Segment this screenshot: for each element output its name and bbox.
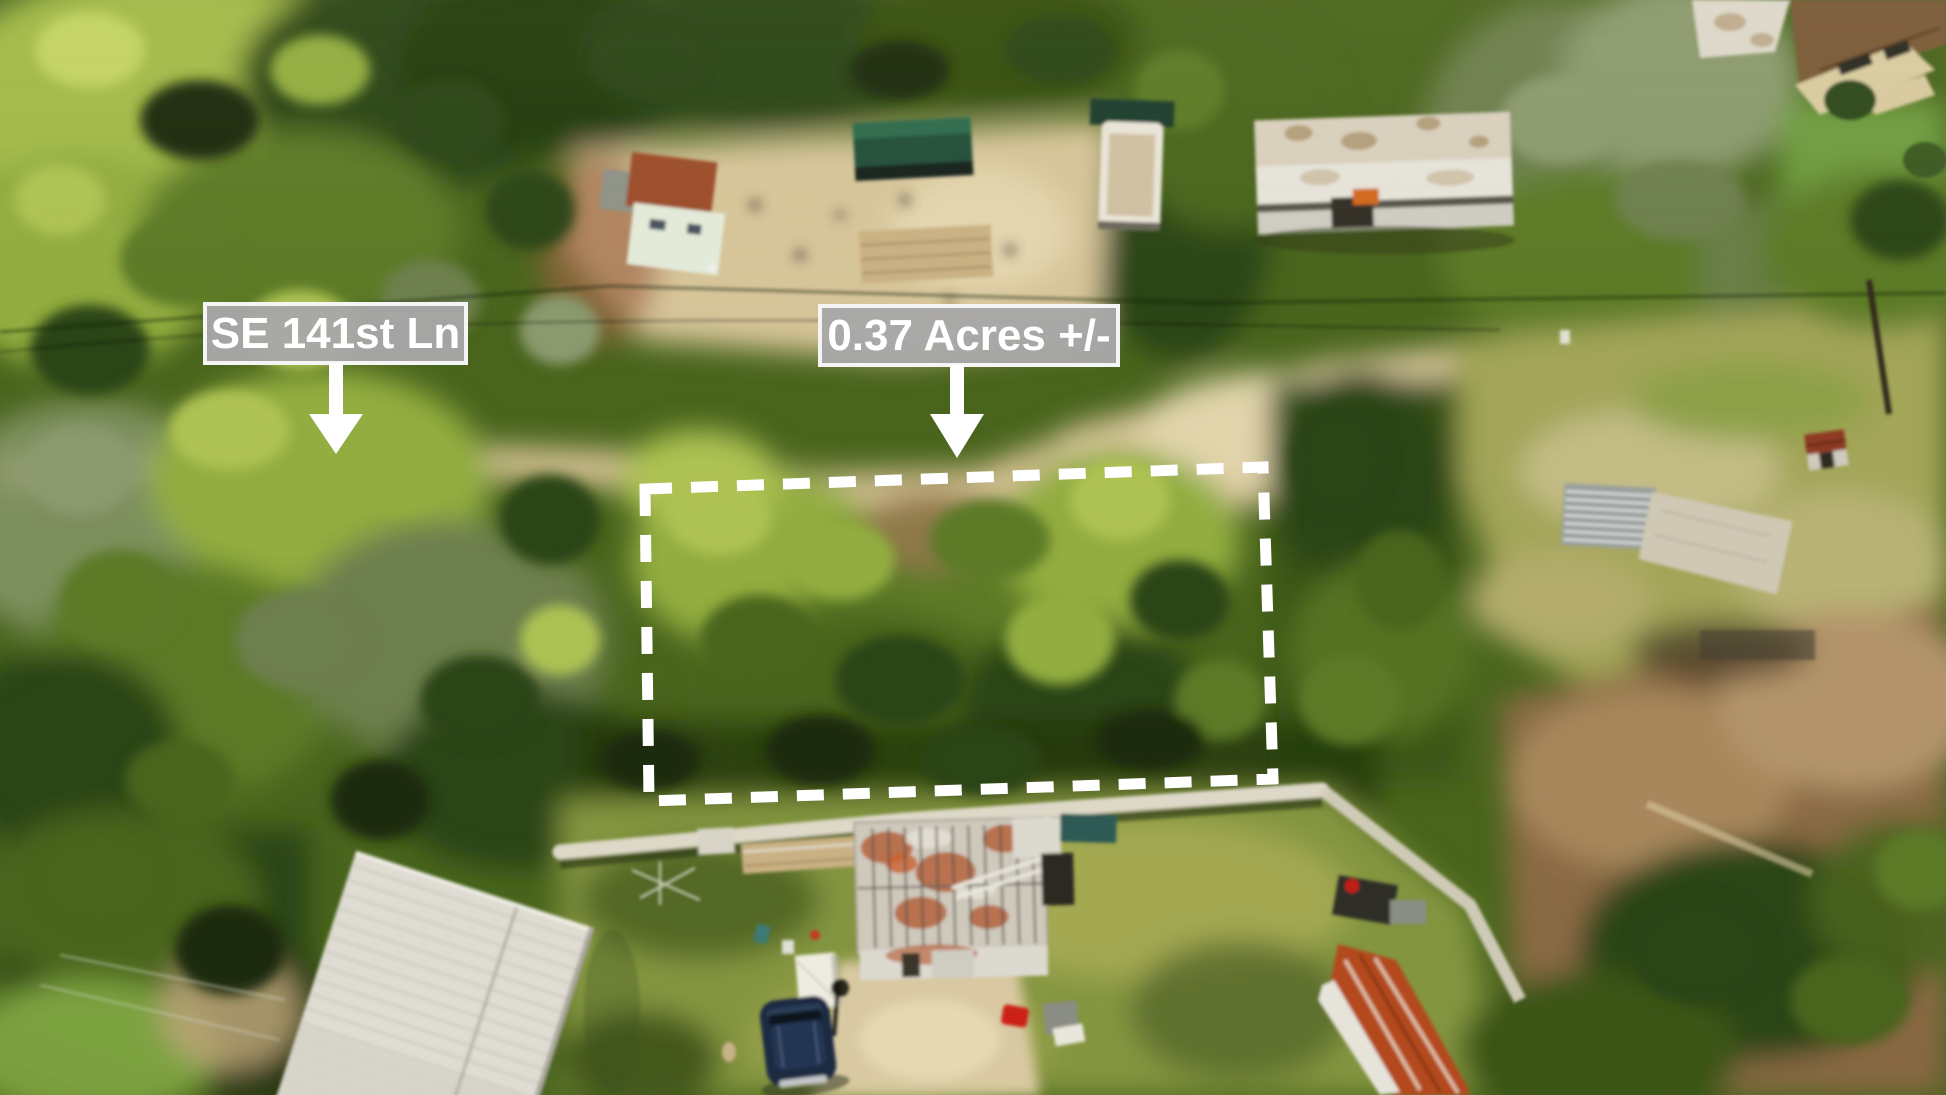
- annotation-layer: [0, 0, 1946, 1095]
- aerial-property-photo: SE 141st Ln 0.37 Acres +/-: [0, 0, 1946, 1095]
- street-name-text: SE 141st Ln: [211, 309, 460, 359]
- acreage-arrow-stem: [950, 365, 964, 415]
- acreage-text: 0.37 Acres +/-: [827, 311, 1110, 361]
- property-boundary: [645, 467, 1273, 801]
- down-arrow-icon: [309, 414, 363, 454]
- street-name-label: SE 141st Ln: [203, 302, 468, 365]
- street-arrow-stem: [329, 363, 343, 415]
- acreage-label: 0.37 Acres +/-: [818, 304, 1120, 367]
- down-arrow-icon: [930, 414, 984, 458]
